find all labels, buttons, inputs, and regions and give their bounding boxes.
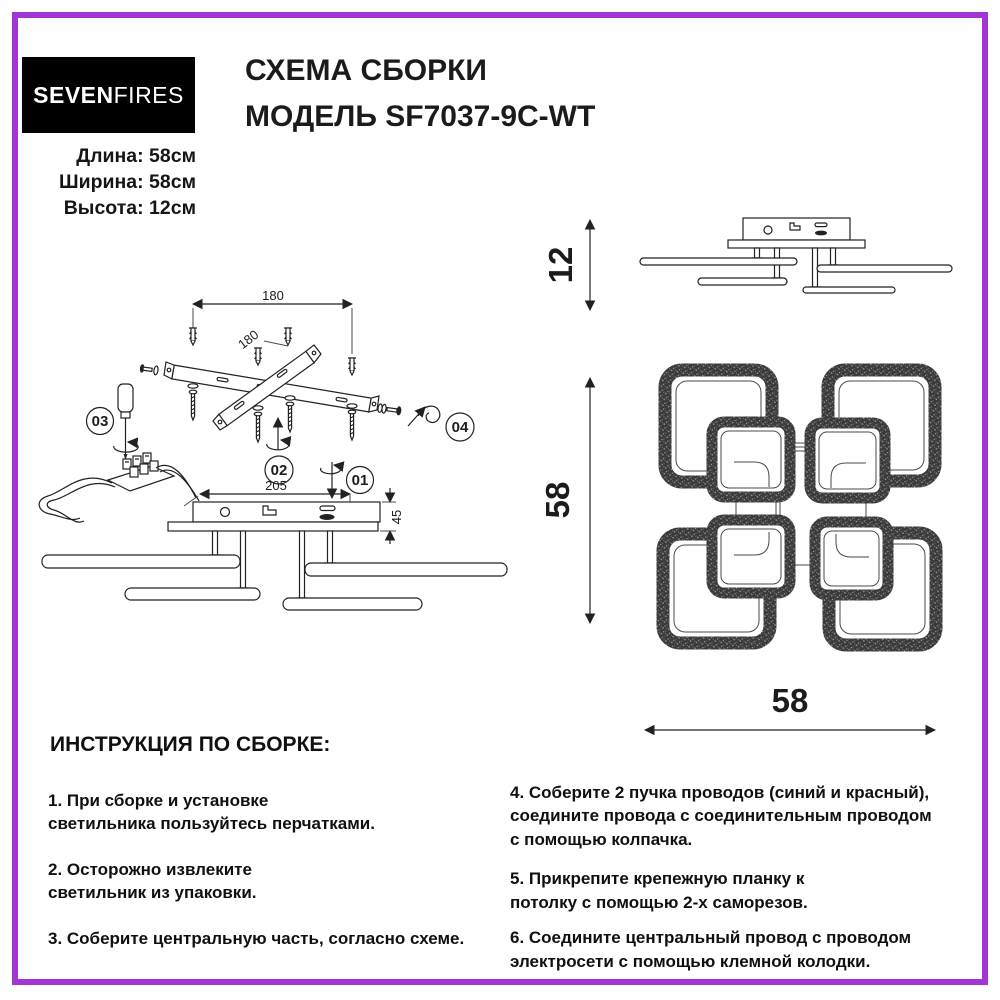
washer bbox=[285, 396, 295, 400]
wall-anchor bbox=[348, 358, 356, 375]
instructions-heading: ИНСТРУКЦИЯ ПО СБОРКЕ: bbox=[50, 733, 330, 757]
ceiling-hook bbox=[418, 406, 440, 422]
callout-04-label: 04 bbox=[452, 419, 469, 436]
title-line-2: МОДЕЛЬ SF7037-9C-WT bbox=[245, 94, 595, 140]
dim-label-58-v: 58 bbox=[539, 482, 576, 519]
bolt-left bbox=[139, 364, 158, 375]
callout-01-label: 01 bbox=[352, 472, 369, 489]
dim-45: 45 bbox=[380, 488, 404, 544]
instructions-left-column: 1. При сборке и установке светильника по… bbox=[48, 789, 503, 972]
plan-view: 58 bbox=[539, 370, 936, 730]
callout-03-label: 03 bbox=[92, 413, 109, 430]
title-line-1: СХЕМА СБОРКИ bbox=[245, 48, 595, 94]
instructions-right-column: 4. Соберите 2 пучка проводов (синий и кр… bbox=[510, 781, 975, 989]
assembly-sheet: SEVENFIRES СХЕМА СБОРКИ МОДЕЛЬ SF7037-9C… bbox=[0, 0, 1000, 1000]
brand-logo-right: FIRES bbox=[114, 82, 184, 109]
exploded-view: 180 180 bbox=[39, 288, 507, 610]
instruction-step-3: 3. Соберите центральную часть, согласно … bbox=[48, 927, 503, 950]
callout-04: 04 bbox=[446, 413, 474, 441]
screw bbox=[286, 402, 294, 432]
dim-label-12: 12 bbox=[542, 247, 579, 284]
page-title: СХЕМА СБОРКИ МОДЕЛЬ SF7037-9C-WT bbox=[245, 48, 595, 140]
callout-03: 03 bbox=[87, 408, 114, 435]
led-square-small bbox=[712, 422, 790, 497]
dim-180-horizontal: 180 bbox=[193, 288, 352, 354]
screw bbox=[254, 412, 262, 442]
led-square-small bbox=[712, 520, 790, 593]
dim-58-vertical: 58 bbox=[539, 378, 590, 623]
brand-logo-left: SEVEN bbox=[33, 82, 113, 109]
assembly-diagram-svg: 180 180 bbox=[20, 200, 980, 750]
lamp-base bbox=[168, 502, 380, 531]
washer bbox=[253, 406, 263, 410]
washer bbox=[347, 404, 357, 408]
led-square-small bbox=[810, 423, 885, 498]
led-square-small bbox=[815, 522, 888, 595]
washer bbox=[188, 384, 198, 388]
instruction-step-5: 5. Прикрепите крепежную планку к потолку… bbox=[510, 867, 975, 914]
dim-label-58-h: 58 bbox=[772, 682, 809, 719]
instruction-step-4: 4. Соберите 2 пучка проводов (синий и кр… bbox=[510, 781, 975, 851]
screw bbox=[189, 390, 197, 420]
side-view: 12 bbox=[542, 218, 952, 310]
wall-anchor bbox=[284, 328, 292, 345]
instruction-step-1: 1. При сборке и установке светильника по… bbox=[48, 789, 503, 836]
terminal-block bbox=[108, 453, 174, 491]
screwdriver bbox=[114, 384, 138, 460]
wall-anchor bbox=[189, 328, 197, 345]
screw bbox=[348, 410, 356, 440]
lamp-arms bbox=[42, 555, 507, 610]
spec-width: Ширина: 58см bbox=[28, 169, 196, 195]
wires bbox=[39, 465, 199, 522]
instruction-step-6: 6. Соедините центральный провод с провод… bbox=[510, 926, 975, 973]
dim-label-205: 205 bbox=[265, 478, 287, 493]
dim-58-horizontal: 58 bbox=[645, 682, 935, 730]
instruction-step-2: 2. Осторожно извлеките светильник из упа… bbox=[48, 858, 503, 905]
dim-label-180-top: 180 bbox=[262, 288, 284, 303]
dim-12: 12 bbox=[542, 220, 590, 310]
callout-01: 01 bbox=[321, 462, 374, 498]
callout-02-label: 02 bbox=[271, 462, 288, 479]
dim-label-45: 45 bbox=[389, 510, 404, 524]
dim-180-diagonal: 180 bbox=[235, 327, 288, 357]
spec-length: Длина: 58см bbox=[28, 143, 196, 169]
bolt-right bbox=[377, 403, 401, 415]
wall-anchor bbox=[254, 348, 262, 365]
brand-logo: SEVENFIRES bbox=[22, 57, 195, 133]
